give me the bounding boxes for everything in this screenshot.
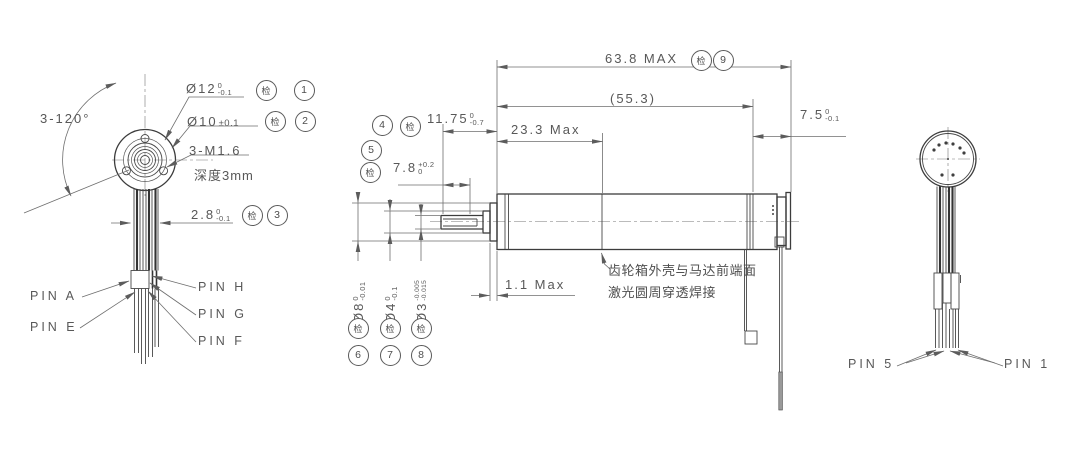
pin-g-label: PIN G: [198, 307, 247, 321]
engineering-drawing-canvas: 3-120° Ø12 0 -0.1 检 1 Ø10 ±0.1 检 2 3-M1.…: [0, 0, 1076, 450]
pin-f-label: PIN F: [198, 334, 245, 348]
item-balloon-2: 2: [295, 111, 316, 132]
item-balloon-5: 5: [361, 140, 382, 161]
lead-width-dimension: 2.8 0 -0.1: [191, 207, 231, 223]
angle-dimension: 3-120°: [40, 111, 90, 127]
item-balloon-9: 9: [713, 50, 734, 71]
inspect-balloon-5: 检: [360, 162, 381, 183]
pin-h-label: PIN H: [198, 280, 246, 294]
weld-note-line1: 齿轮箱外壳与马达前端面: [608, 260, 757, 279]
item-balloon-4: 4: [372, 115, 393, 136]
inspect-balloon-4: 检: [400, 116, 421, 137]
angle-value: 3-120°: [40, 111, 90, 127]
inspect-balloon-6: 检: [348, 318, 369, 339]
pin-e-label: PIN E: [30, 320, 78, 334]
thread-callout: 3-M1.6: [189, 143, 241, 159]
thread-depth-note: 深度3mm: [194, 168, 254, 184]
item-balloon-3: 3: [267, 205, 288, 226]
item-balloon-1: 1: [294, 80, 315, 101]
dia8-dimension: Ø8 0 -0.01: [351, 263, 367, 323]
inspect-balloon-8: 检: [411, 318, 432, 339]
item-balloon-7: 7: [380, 345, 401, 366]
gap-dimension: 1.1 Max: [505, 277, 565, 293]
rear-length-dimension: 7.5 0 -0.1: [800, 107, 840, 123]
front-length-dimension: 11.75 0 -0.7: [427, 111, 484, 127]
inspect-balloon-2: 检: [265, 111, 286, 132]
ref-length-dimension: (55.3): [610, 91, 656, 107]
rear-view-linework: [897, 127, 1003, 366]
pin-1-label: PIN 1: [1004, 357, 1050, 371]
gearbox-length-dimension: 23.3 Max: [511, 122, 580, 138]
item-balloon-6: 6: [348, 345, 369, 366]
inspect-balloon-9: 检: [691, 50, 712, 71]
dia4-dimension: Ø4 0 -0.1: [383, 263, 399, 323]
dia12-dimension: Ø12 0 -0.1: [186, 81, 232, 97]
inspect-balloon-1: 检: [256, 80, 277, 101]
weld-note-line2: 激光圆周穿透焊接: [608, 282, 716, 301]
pin-a-label: PIN A: [30, 289, 77, 303]
dia3-dimension: Ø3 -0.005 -0.015: [414, 263, 430, 323]
overall-length-dimension: 63.8 MAX: [605, 51, 678, 67]
drawing-linework: [0, 0, 1076, 450]
shaft-length-dimension: 7.8 +0.2 0: [393, 160, 434, 176]
dia10-dimension: Ø10 ±0.1: [187, 114, 239, 130]
inspect-balloon-7: 检: [380, 318, 401, 339]
pin-5-label: PIN 5: [848, 357, 894, 371]
inspect-balloon-3: 检: [242, 205, 263, 226]
item-balloon-8: 8: [411, 345, 432, 366]
